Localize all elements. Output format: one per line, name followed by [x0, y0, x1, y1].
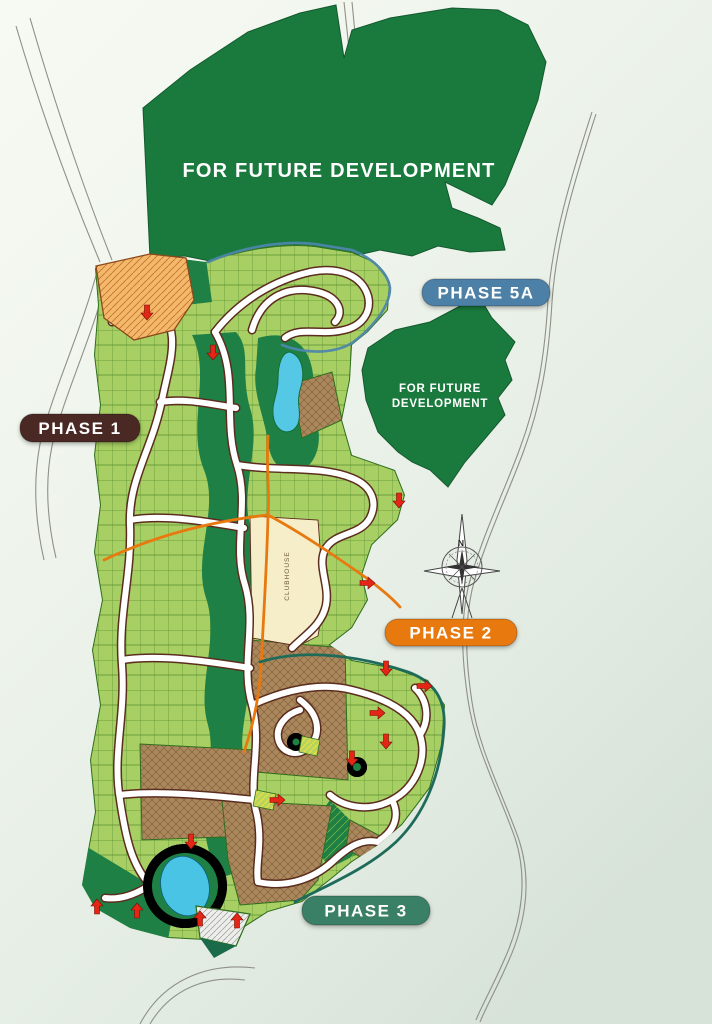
future-development-secondary-label-line2: DEVELOPMENT: [392, 398, 488, 410]
clubhouse-label: CLUBHOUSE: [284, 551, 291, 600]
phase5a-label[interactable]: PHASE 5A: [422, 279, 550, 306]
masterplan-map: FOR FUTURE DEVELOPMENT FOR FUTURE DEVELO…: [0, 0, 712, 1024]
compass-north-label: N: [458, 538, 464, 548]
phase2-label[interactable]: PHASE 2: [385, 619, 517, 646]
masterplan-page: FOR FUTURE DEVELOPMENT FOR FUTURE DEVELO…: [0, 0, 712, 1024]
svg-text:PHASE 5A: PHASE 5A: [437, 284, 534, 303]
future-development-secondary-label-line1: FOR FUTURE: [399, 383, 481, 395]
svg-text:PHASE 1: PHASE 1: [38, 419, 121, 438]
future-development-label: FOR FUTURE DEVELOPMENT: [182, 160, 495, 182]
svg-text:PHASE 2: PHASE 2: [409, 624, 492, 643]
culdesac-island: [293, 739, 300, 746]
phase1-label[interactable]: PHASE 1: [20, 414, 140, 442]
phase3-label[interactable]: PHASE 3: [302, 896, 430, 925]
svg-text:PHASE 3: PHASE 3: [324, 902, 407, 921]
culdesac-island: [353, 763, 361, 771]
